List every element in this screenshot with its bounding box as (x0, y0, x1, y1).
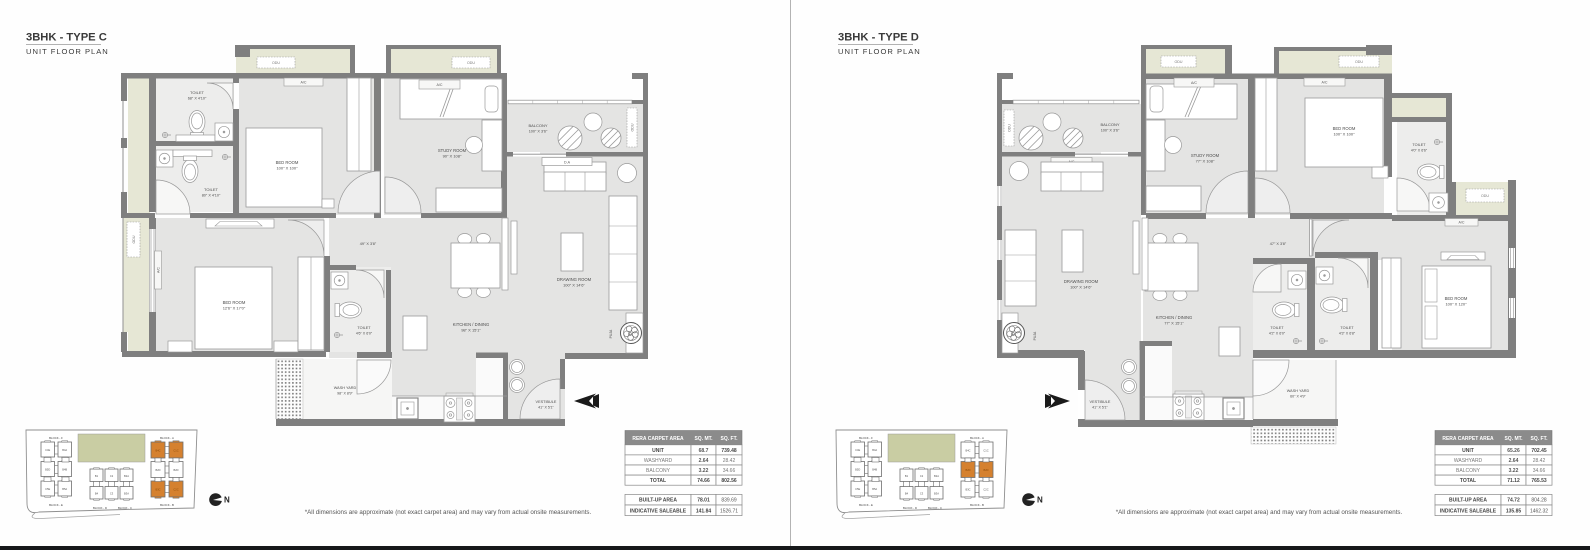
svg-text:SQ. FT.: SQ. FT. (1531, 436, 1549, 442)
svg-text:ODU: ODU (1007, 124, 1011, 132)
svg-text:BED ROOM: BED ROOM (1445, 296, 1468, 301)
svg-text:47" X 3'8": 47" X 3'8" (1270, 242, 1287, 246)
svg-text:BLOCK - B: BLOCK - B (970, 503, 984, 507)
svg-text:INDICATIVE SALEABLE: INDICATIVE SALEABLE (1440, 508, 1497, 514)
svg-text:C2C: C2C (983, 488, 988, 492)
svg-text:B5A: B5A (872, 487, 877, 491)
svg-text:*All dimensions are approximat: *All dimensions are approximate (not exa… (305, 509, 592, 516)
svg-text:90" X 108": 90" X 108" (443, 154, 462, 159)
svg-text:UNIT FLOOR PLAN: UNIT FLOOR PLAN (838, 47, 921, 56)
svg-text:TOILET: TOILET (1412, 143, 1426, 147)
svg-text:839.69: 839.69 (721, 498, 737, 504)
svg-text:BUILT-UP AREA: BUILT-UP AREA (639, 498, 677, 504)
svg-text:WASHYARD: WASHYARD (1454, 458, 1483, 464)
svg-text:2.64: 2.64 (1509, 458, 1519, 464)
svg-text:C1C: C1C (983, 449, 988, 453)
svg-text:765.53: 765.53 (1531, 478, 1547, 484)
svg-text:B4B: B4B (872, 468, 877, 472)
svg-text:B3C: B3C (155, 488, 160, 492)
svg-text:UNIT FLOOR PLAN: UNIT FLOOR PLAN (26, 47, 109, 56)
svg-text:34.66: 34.66 (1533, 468, 1546, 474)
svg-text:ODU: ODU (132, 235, 136, 243)
svg-text:BED ROOM: BED ROOM (276, 160, 299, 165)
svg-text:C2: C2 (920, 474, 924, 478)
svg-text:BLOCK - C: BLOCK - C (118, 506, 132, 510)
svg-text:100" X 100": 100" X 100" (1333, 132, 1355, 137)
svg-text:68.7: 68.7 (699, 448, 709, 454)
svg-text:BLOCK - B: BLOCK - B (160, 503, 174, 507)
svg-text:BALCONY: BALCONY (528, 123, 547, 128)
svg-text:*All dimensions are approximat: *All dimensions are approximate (not exa… (1116, 509, 1403, 516)
svg-text:B1: B1 (905, 474, 909, 478)
svg-text:802.56: 802.56 (721, 478, 737, 484)
svg-text:B4A: B4A (872, 448, 877, 452)
svg-text:ODU: ODU (1355, 60, 1363, 64)
svg-text:BLOCK - A: BLOCK - A (160, 436, 174, 440)
svg-text:B5D: B5D (855, 468, 860, 472)
svg-text:WASH YARD: WASH YARD (1287, 389, 1310, 393)
svg-text:C2C: C2C (173, 488, 178, 492)
svg-text:3.22: 3.22 (1509, 468, 1519, 474)
svg-text:100" X 120": 100" X 120" (1445, 302, 1467, 307)
svg-text:2.64: 2.64 (699, 458, 709, 464)
svg-text:STUDY ROOM: STUDY ROOM (1191, 153, 1220, 158)
svg-text:BLOCK - F: BLOCK - F (859, 436, 873, 440)
svg-text:702.45: 702.45 (1531, 448, 1547, 454)
svg-text:BED ROOM: BED ROOM (1333, 126, 1356, 131)
svg-text:TOTAL: TOTAL (1460, 478, 1476, 484)
svg-text:100" X 3'6": 100" X 3'6" (529, 130, 548, 134)
svg-text:B2D: B2D (965, 468, 970, 472)
svg-text:135.85: 135.85 (1506, 508, 1522, 514)
svg-text:12'6" X 17'0": 12'6" X 17'0" (223, 306, 246, 311)
svg-text:C5E: C5E (855, 487, 860, 491)
svg-text:DRAWING ROOM: DRAWING ROOM (1064, 279, 1099, 284)
svg-text:TOILET: TOILET (357, 326, 371, 330)
svg-text:KITCHEN / DINING: KITCHEN / DINING (453, 322, 490, 327)
svg-text:BLOCK - D: BLOCK - D (903, 506, 917, 510)
svg-text:98" X 8'9": 98" X 8'9" (337, 392, 353, 396)
svg-text:ODU: ODU (467, 61, 475, 65)
svg-text:100" X 14'6": 100" X 14'6" (1070, 285, 1092, 290)
svg-text:N: N (224, 495, 230, 504)
svg-text:B2D: B2D (983, 468, 988, 472)
svg-text:B2A: B2A (124, 474, 129, 478)
svg-text:A/C: A/C (1322, 80, 1328, 84)
svg-text:A/C: A/C (156, 267, 160, 273)
svg-text:C3: C3 (920, 491, 924, 495)
svg-text:B5D: B5D (45, 468, 50, 472)
svg-text:77" X 15'1": 77" X 15'1" (1164, 321, 1184, 326)
svg-text:UNIT: UNIT (1462, 448, 1474, 454)
svg-text:100" X 100": 100" X 100" (276, 166, 298, 171)
svg-text:C2: C2 (110, 474, 114, 478)
svg-text:BLOCK - E: BLOCK - E (859, 503, 873, 507)
svg-text:C1C: C1C (173, 449, 178, 453)
svg-text:3BHK - TYPE D: 3BHK - TYPE D (838, 32, 919, 44)
svg-text:C3: C3 (110, 491, 114, 495)
svg-text:71.12: 71.12 (1507, 478, 1520, 484)
svg-text:BLOCK - C: BLOCK - C (928, 506, 942, 510)
svg-text:C4E: C4E (45, 448, 50, 452)
svg-text:TOILET: TOILET (1340, 326, 1354, 330)
svg-text:STUDY ROOM: STUDY ROOM (438, 148, 467, 153)
svg-text:N: N (1037, 495, 1043, 504)
svg-text:B2D: B2D (155, 468, 160, 472)
svg-text:B4: B4 (95, 491, 99, 495)
svg-text:3BHK - TYPE C: 3BHK - TYPE C (26, 32, 107, 44)
svg-text:B2A: B2A (934, 474, 939, 478)
svg-text:1462.32: 1462.32 (1530, 508, 1548, 514)
svg-text:68" X 4'10": 68" X 4'10" (188, 97, 207, 101)
svg-text:4'2" X 6'0": 4'2" X 6'0" (1269, 332, 1286, 336)
svg-text:B2D: B2D (173, 468, 178, 472)
svg-text:D.A: D.A (564, 160, 571, 164)
svg-text:41" X 5'1": 41" X 5'1" (538, 406, 554, 410)
svg-text:TOILET: TOILET (1270, 326, 1284, 330)
svg-text:49" X 3'8": 49" X 3'8" (360, 242, 377, 246)
svg-text:BALCONY: BALCONY (1456, 468, 1481, 474)
svg-text:B4C: B4C (155, 449, 160, 453)
svg-text:RERA CARPET AREA: RERA CARPET AREA (632, 436, 684, 442)
svg-text:WASHYARD: WASHYARD (644, 458, 673, 464)
svg-text:BLOCK - F: BLOCK - F (49, 436, 63, 440)
svg-text:BALCONY: BALCONY (1100, 122, 1119, 127)
svg-text:A/C: A/C (1459, 221, 1465, 225)
svg-text:B4B: B4B (62, 468, 67, 472)
svg-text:3.22: 3.22 (699, 468, 709, 474)
svg-text:4'6" X 6'0": 4'6" X 6'0" (356, 332, 373, 336)
svg-text:ODU: ODU (630, 123, 634, 131)
svg-text:78.01: 78.01 (697, 498, 710, 504)
svg-text:B1: B1 (95, 474, 99, 478)
svg-text:VESTIBULE: VESTIBULE (536, 400, 557, 404)
svg-text:WASH YARD: WASH YARD (334, 386, 357, 390)
svg-text:B4: B4 (905, 491, 909, 495)
svg-text:PUJA: PUJA (1033, 331, 1037, 340)
svg-text:141.84: 141.84 (696, 508, 712, 514)
svg-text:4'3" X 6'8": 4'3" X 6'8" (1339, 332, 1356, 336)
svg-text:KITCHEN / DINING: KITCHEN / DINING (1156, 315, 1193, 320)
svg-text:DRAWING ROOM: DRAWING ROOM (557, 277, 592, 282)
svg-text:BLOCK - E: BLOCK - E (49, 503, 63, 507)
svg-text:RERA CARPET AREA: RERA CARPET AREA (1442, 436, 1494, 442)
svg-text:B5A: B5A (62, 487, 67, 491)
svg-text:41" X 5'1": 41" X 5'1" (1092, 406, 1108, 410)
svg-text:UNIT: UNIT (652, 448, 664, 454)
svg-text:B3C: B3C (965, 488, 970, 492)
svg-text:SQ. MT.: SQ. MT. (694, 436, 713, 442)
svg-text:VESTIBULE: VESTIBULE (1090, 400, 1111, 404)
svg-text:A/C: A/C (301, 80, 307, 84)
svg-text:77" X 108": 77" X 108" (1196, 159, 1215, 164)
svg-text:BUILT-UP AREA: BUILT-UP AREA (1449, 498, 1487, 504)
svg-text:1526.71: 1526.71 (720, 508, 738, 514)
svg-text:C5E: C5E (45, 487, 50, 491)
svg-text:100" X 14'6": 100" X 14'6" (563, 283, 585, 288)
svg-text:B4C: B4C (965, 449, 970, 453)
svg-text:28.42: 28.42 (1533, 458, 1546, 464)
svg-text:80" X 4'10": 80" X 4'10" (202, 194, 221, 198)
svg-text:4'0" X 6'6": 4'0" X 6'6" (1411, 149, 1428, 153)
svg-text:98" X 15'1": 98" X 15'1" (461, 328, 481, 333)
svg-text:SQ. MT.: SQ. MT. (1504, 436, 1523, 442)
svg-text:C4E: C4E (855, 448, 860, 452)
svg-text:INDICATIVE SALEABLE: INDICATIVE SALEABLE (630, 508, 687, 514)
svg-text:34.66: 34.66 (723, 468, 736, 474)
svg-text:A/C: A/C (1191, 81, 1197, 85)
svg-text:TOTAL: TOTAL (650, 478, 666, 484)
svg-text:B3A: B3A (124, 491, 129, 495)
svg-text:A/C: A/C (437, 83, 443, 87)
svg-text:TOILET: TOILET (190, 90, 204, 95)
svg-text:739.48: 739.48 (721, 448, 737, 454)
svg-text:PUJA: PUJA (609, 329, 613, 338)
svg-text:ODU: ODU (1481, 194, 1489, 198)
svg-text:74.72: 74.72 (1507, 498, 1520, 504)
svg-text:ODU: ODU (1175, 60, 1183, 64)
svg-text:804.28: 804.28 (1531, 498, 1547, 504)
svg-text:BED ROOM: BED ROOM (223, 300, 246, 305)
svg-text:74.66: 74.66 (697, 478, 710, 484)
svg-text:B4A: B4A (62, 448, 67, 452)
svg-text:28.42: 28.42 (723, 458, 736, 464)
svg-text:BLOCK - D: BLOCK - D (93, 506, 107, 510)
svg-text:B3A: B3A (934, 491, 939, 495)
svg-text:SQ. FT.: SQ. FT. (721, 436, 739, 442)
svg-text:60" X 4'9": 60" X 4'9" (1290, 395, 1306, 399)
svg-text:ODU: ODU (272, 61, 280, 65)
svg-text:TOILET: TOILET (204, 187, 218, 192)
svg-text:BALCONY: BALCONY (646, 468, 671, 474)
svg-text:65.26: 65.26 (1507, 448, 1520, 454)
svg-text:100" X 3'6": 100" X 3'6" (1101, 129, 1120, 133)
svg-text:BLOCK - A: BLOCK - A (970, 436, 984, 440)
